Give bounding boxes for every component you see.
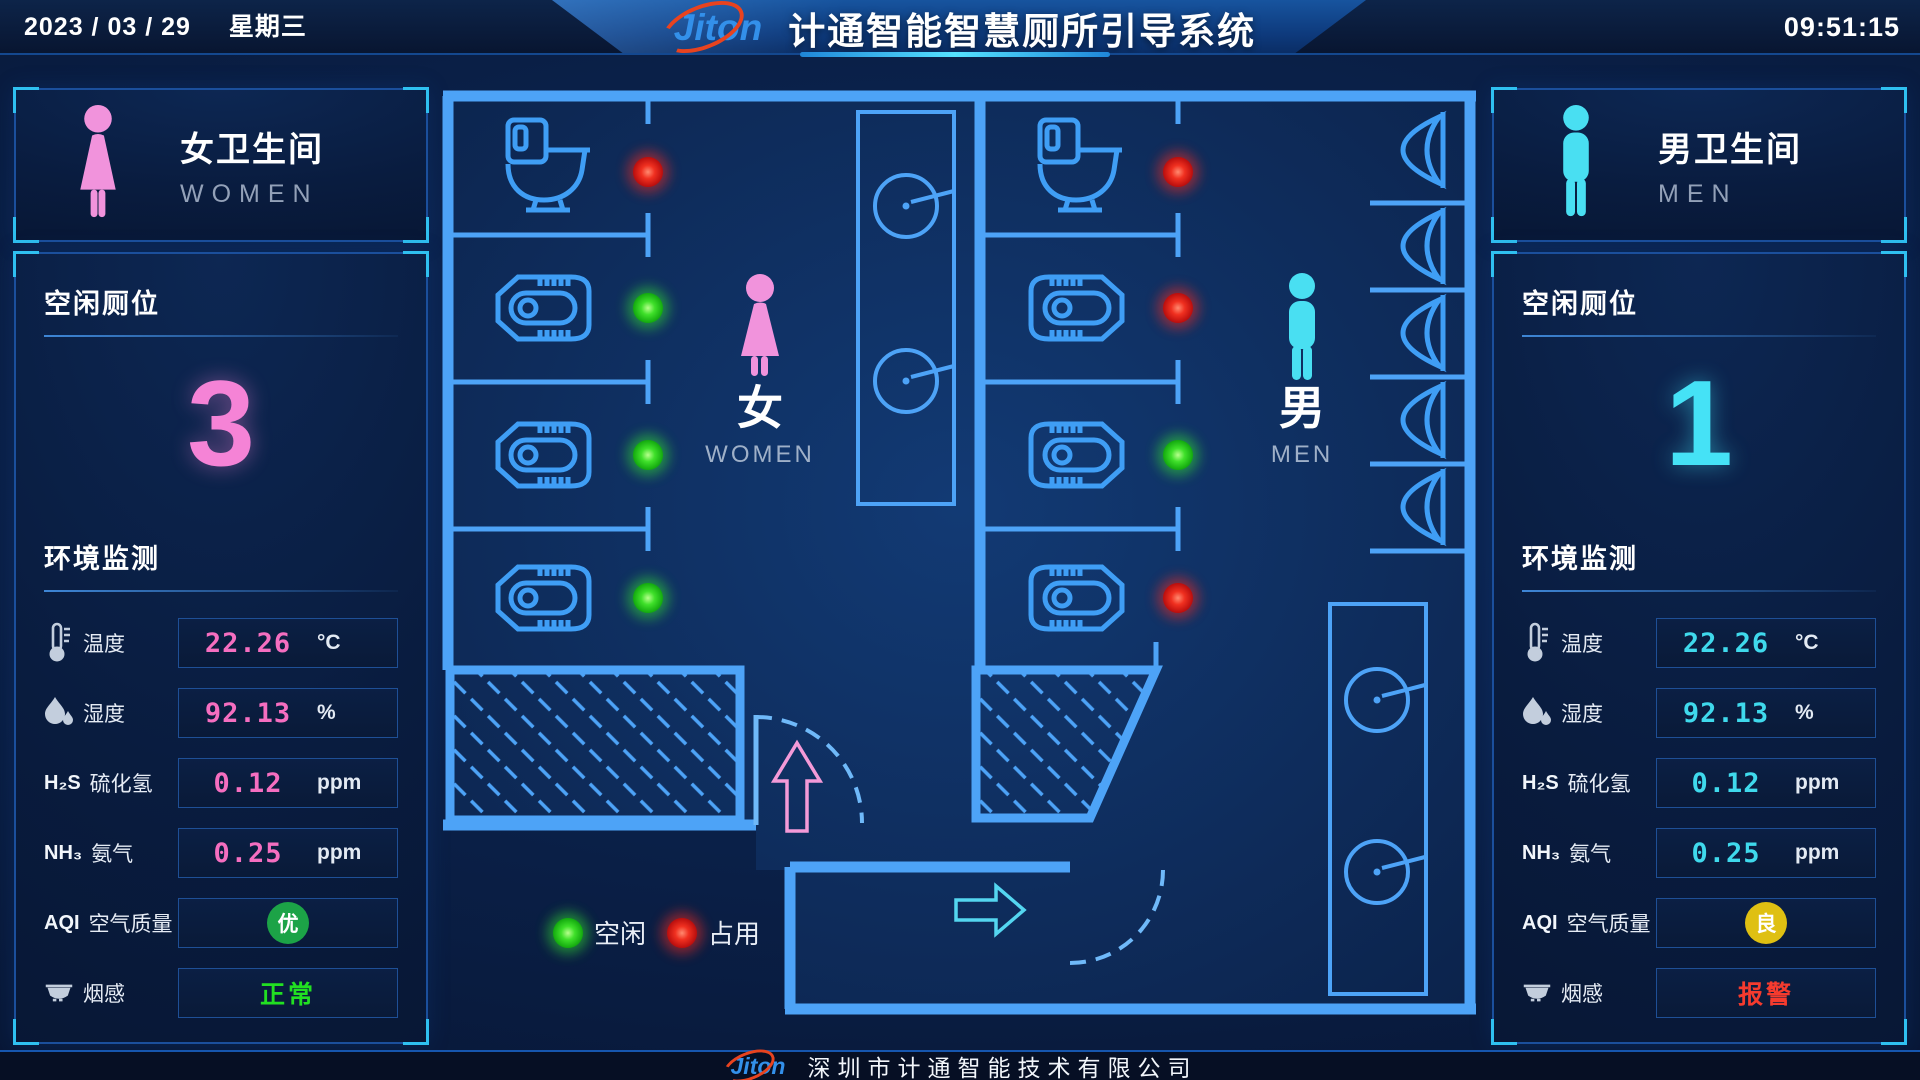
aqi-prefix-label: AQI (44, 912, 80, 935)
women-stall-4-status-dot (627, 577, 669, 619)
nh3-formula-label: NH₃ (1522, 842, 1560, 865)
env-row-nh3: NH₃ 氨气 0.25 ppm (44, 828, 398, 878)
title-banner: Jiton 计通智能智慧厕所引导系统 (552, 0, 1366, 55)
legend: 空闲 占用 (547, 912, 760, 954)
women-temperature-value: 22.26 (179, 628, 317, 659)
women-aqi-box: 优 (178, 898, 398, 948)
corner-accent (1491, 1019, 1517, 1045)
env-label-text: 温度 (1561, 628, 1603, 658)
unit-label: ppm (317, 841, 397, 865)
env-label-text: 硫化氢 (1568, 768, 1631, 798)
corner-accent (1881, 251, 1907, 277)
men-nh3-value: 0.25 (1657, 838, 1795, 869)
women-header-text: 女卫生间 WOMEN (180, 122, 324, 209)
men-h2s-box: 0.12 ppm (1656, 758, 1876, 808)
men-h2s-value: 0.12 (1657, 768, 1795, 799)
corner-accent (13, 251, 39, 277)
women-restroom-subtitle: WOMEN (180, 180, 324, 209)
corner-accent (13, 87, 39, 113)
men-stall-4-status-dot (1157, 577, 1199, 619)
women-humidity-box: 92.13 % (178, 688, 398, 738)
humidity-icon (1522, 695, 1552, 731)
women-stall-3-status-dot (627, 434, 669, 476)
env-row-aqi: AQI 空气质量 良 (1522, 898, 1876, 948)
men-available-count: 1 (1522, 337, 1876, 509)
women-stall-1-status-dot (627, 151, 669, 193)
corner-accent (13, 1019, 39, 1045)
women-smoke-status: 正常 (260, 975, 316, 1011)
women-env-title: 环境监测 (44, 537, 398, 576)
unit-label: °C (317, 631, 397, 655)
men-zone-en: MEN (1271, 441, 1333, 468)
env-row-smoke: 烟感 正常 (44, 968, 398, 1018)
h2s-formula-label: H₂S (44, 772, 81, 795)
footer-bar: Jiton 深圳市计通智能技术有限公司 (0, 1050, 1920, 1080)
env-label-text: 湿度 (83, 698, 125, 728)
header-accent-line (800, 52, 1110, 57)
env-label-text: 硫化氢 (90, 768, 153, 798)
page-title: 计通智能智慧厕所引导系统 (788, 1, 1256, 55)
men-humidity-value: 92.13 (1657, 698, 1795, 729)
women-temperature-box: 22.26 °C (178, 618, 398, 668)
section-divider (44, 590, 398, 592)
corner-accent (13, 217, 39, 243)
corner-accent (403, 217, 429, 243)
men-smoke-box: 报警 (1656, 968, 1876, 1018)
men-restroom-header-card: 男卫生间 MEN (1492, 88, 1906, 242)
env-label-text: 空气质量 (1567, 908, 1651, 938)
env-row-h2s: H₂S 硫化氢 0.12 ppm (1522, 758, 1876, 808)
legend-vacant-dot (547, 912, 589, 954)
env-row-nh3: NH₃ 氨气 0.25 ppm (1522, 828, 1876, 878)
unit-label: % (317, 701, 397, 725)
unit-label: °C (1795, 631, 1875, 655)
unit-label: ppm (317, 771, 397, 795)
footer-jiton-logo: Jiton (723, 1055, 794, 1078)
men-aqi-badge: 良 (1745, 902, 1787, 944)
clock-text: 09:51:15 (1784, 0, 1900, 55)
date-block: 2023 / 03 / 29 星期三 (24, 0, 307, 55)
men-env-title: 环境监测 (1522, 537, 1876, 576)
legend-occupied-dot (661, 912, 703, 954)
men-nh3-box: 0.25 ppm (1656, 828, 1876, 878)
env-row-h2s: H₂S 硫化氢 0.12 ppm (44, 758, 398, 808)
men-restroom-subtitle: MEN (1658, 180, 1802, 209)
env-label-text: 氨气 (1569, 838, 1611, 868)
women-zone-en: WOMEN (705, 441, 815, 468)
men-stall-3-status-dot (1157, 434, 1199, 476)
women-nh3-value: 0.25 (179, 838, 317, 869)
aqi-prefix-label: AQI (1522, 912, 1558, 935)
unit-label: ppm (1795, 841, 1875, 865)
smoke-detector-icon (1522, 980, 1552, 1006)
unit-label: ppm (1795, 771, 1875, 795)
corner-accent (403, 1019, 429, 1045)
env-row-smoke: 烟感 报警 (1522, 968, 1876, 1018)
women-service-area (450, 670, 740, 820)
thermometer-icon (1522, 622, 1552, 664)
corner-accent (403, 87, 429, 113)
men-header-text: 男卫生间 MEN (1658, 122, 1802, 209)
woman-icon (66, 104, 130, 226)
h2s-formula-label: H₂S (1522, 772, 1559, 795)
section-divider (1522, 590, 1876, 592)
env-row-humidity: 湿度 92.13 % (1522, 688, 1876, 738)
date-text: 2023 / 03 / 29 (24, 13, 191, 41)
env-label-text: 氨气 (91, 838, 133, 868)
men-vacant-title: 空闲厕位 (1522, 282, 1876, 321)
men-stats-card: 空闲厕位 1 环境监测 温度 22.26 °C 湿度 (1492, 252, 1906, 1044)
women-aqi-badge: 优 (267, 902, 309, 944)
men-restroom-title: 男卫生间 (1658, 122, 1802, 171)
women-nh3-box: 0.25 ppm (178, 828, 398, 878)
men-env-rows: 温度 22.26 °C 湿度 92.13 % H₂S 硫化氢 (1522, 618, 1876, 1018)
women-restroom-title: 女卫生间 (180, 122, 324, 171)
env-row-humidity: 湿度 92.13 % (44, 688, 398, 738)
humidity-icon (44, 695, 74, 731)
men-stall-1-status-dot (1157, 151, 1199, 193)
company-name: 深圳市计通智能技术有限公司 (807, 1049, 1197, 1080)
env-label-text: 湿度 (1561, 698, 1603, 728)
weekday-text: 星期三 (229, 13, 307, 41)
women-restroom-header-card: 女卫生间 WOMEN (14, 88, 428, 242)
corner-accent (1491, 87, 1517, 113)
women-h2s-box: 0.12 ppm (178, 758, 398, 808)
top-header-bar: 2023 / 03 / 29 星期三 Jiton 计通智能智慧厕所引导系统 09… (0, 0, 1920, 55)
floor-plan-map: 女 WOMEN 男 MEN 空闲 占用 (440, 88, 1492, 1044)
women-available-count: 3 (44, 337, 398, 509)
unit-label: % (1795, 701, 1875, 725)
women-zone-cn: 女 (737, 382, 783, 434)
jiton-logo: Jiton (662, 9, 774, 46)
env-label-text: 空气质量 (89, 908, 173, 938)
env-row-aqi: AQI 空气质量 优 (44, 898, 398, 948)
women-vacant-title: 空闲厕位 (44, 282, 398, 321)
env-label-text: 烟感 (1561, 978, 1603, 1008)
legend-occupied-label: 占用 (708, 919, 760, 949)
corner-accent (1881, 1019, 1907, 1045)
env-label-text: 烟感 (83, 978, 125, 1008)
env-row-temperature: 温度 22.26 °C (1522, 618, 1876, 668)
corner-accent (403, 251, 429, 277)
corner-accent (1491, 251, 1517, 277)
women-stats-card: 空闲厕位 3 环境监测 温度 22.26 °C 湿度 (14, 252, 428, 1044)
corner-accent (1881, 217, 1907, 243)
corner-accent (1491, 217, 1517, 243)
env-label-text: 温度 (83, 628, 125, 658)
women-h2s-value: 0.12 (179, 768, 317, 799)
men-temperature-value: 22.26 (1657, 628, 1795, 659)
smoke-detector-icon (44, 980, 74, 1006)
men-stall-2-status-dot (1157, 287, 1199, 329)
env-row-temperature: 温度 22.26 °C (44, 618, 398, 668)
corner-accent (1881, 87, 1907, 113)
man-icon (1544, 104, 1608, 226)
men-temperature-box: 22.26 °C (1656, 618, 1876, 668)
men-humidity-box: 92.13 % (1656, 688, 1876, 738)
women-env-rows: 温度 22.26 °C 湿度 92.13 % H₂S 硫化氢 (44, 618, 398, 1018)
women-stall-2-status-dot (627, 287, 669, 329)
women-smoke-box: 正常 (178, 968, 398, 1018)
men-zone-cn: 男 (1279, 382, 1325, 434)
legend-vacant-label: 空闲 (594, 919, 646, 949)
nh3-formula-label: NH₃ (44, 842, 82, 865)
women-humidity-value: 92.13 (179, 698, 317, 729)
men-smoke-status: 报警 (1738, 975, 1794, 1011)
men-aqi-box: 良 (1656, 898, 1876, 948)
thermometer-icon (44, 622, 74, 664)
